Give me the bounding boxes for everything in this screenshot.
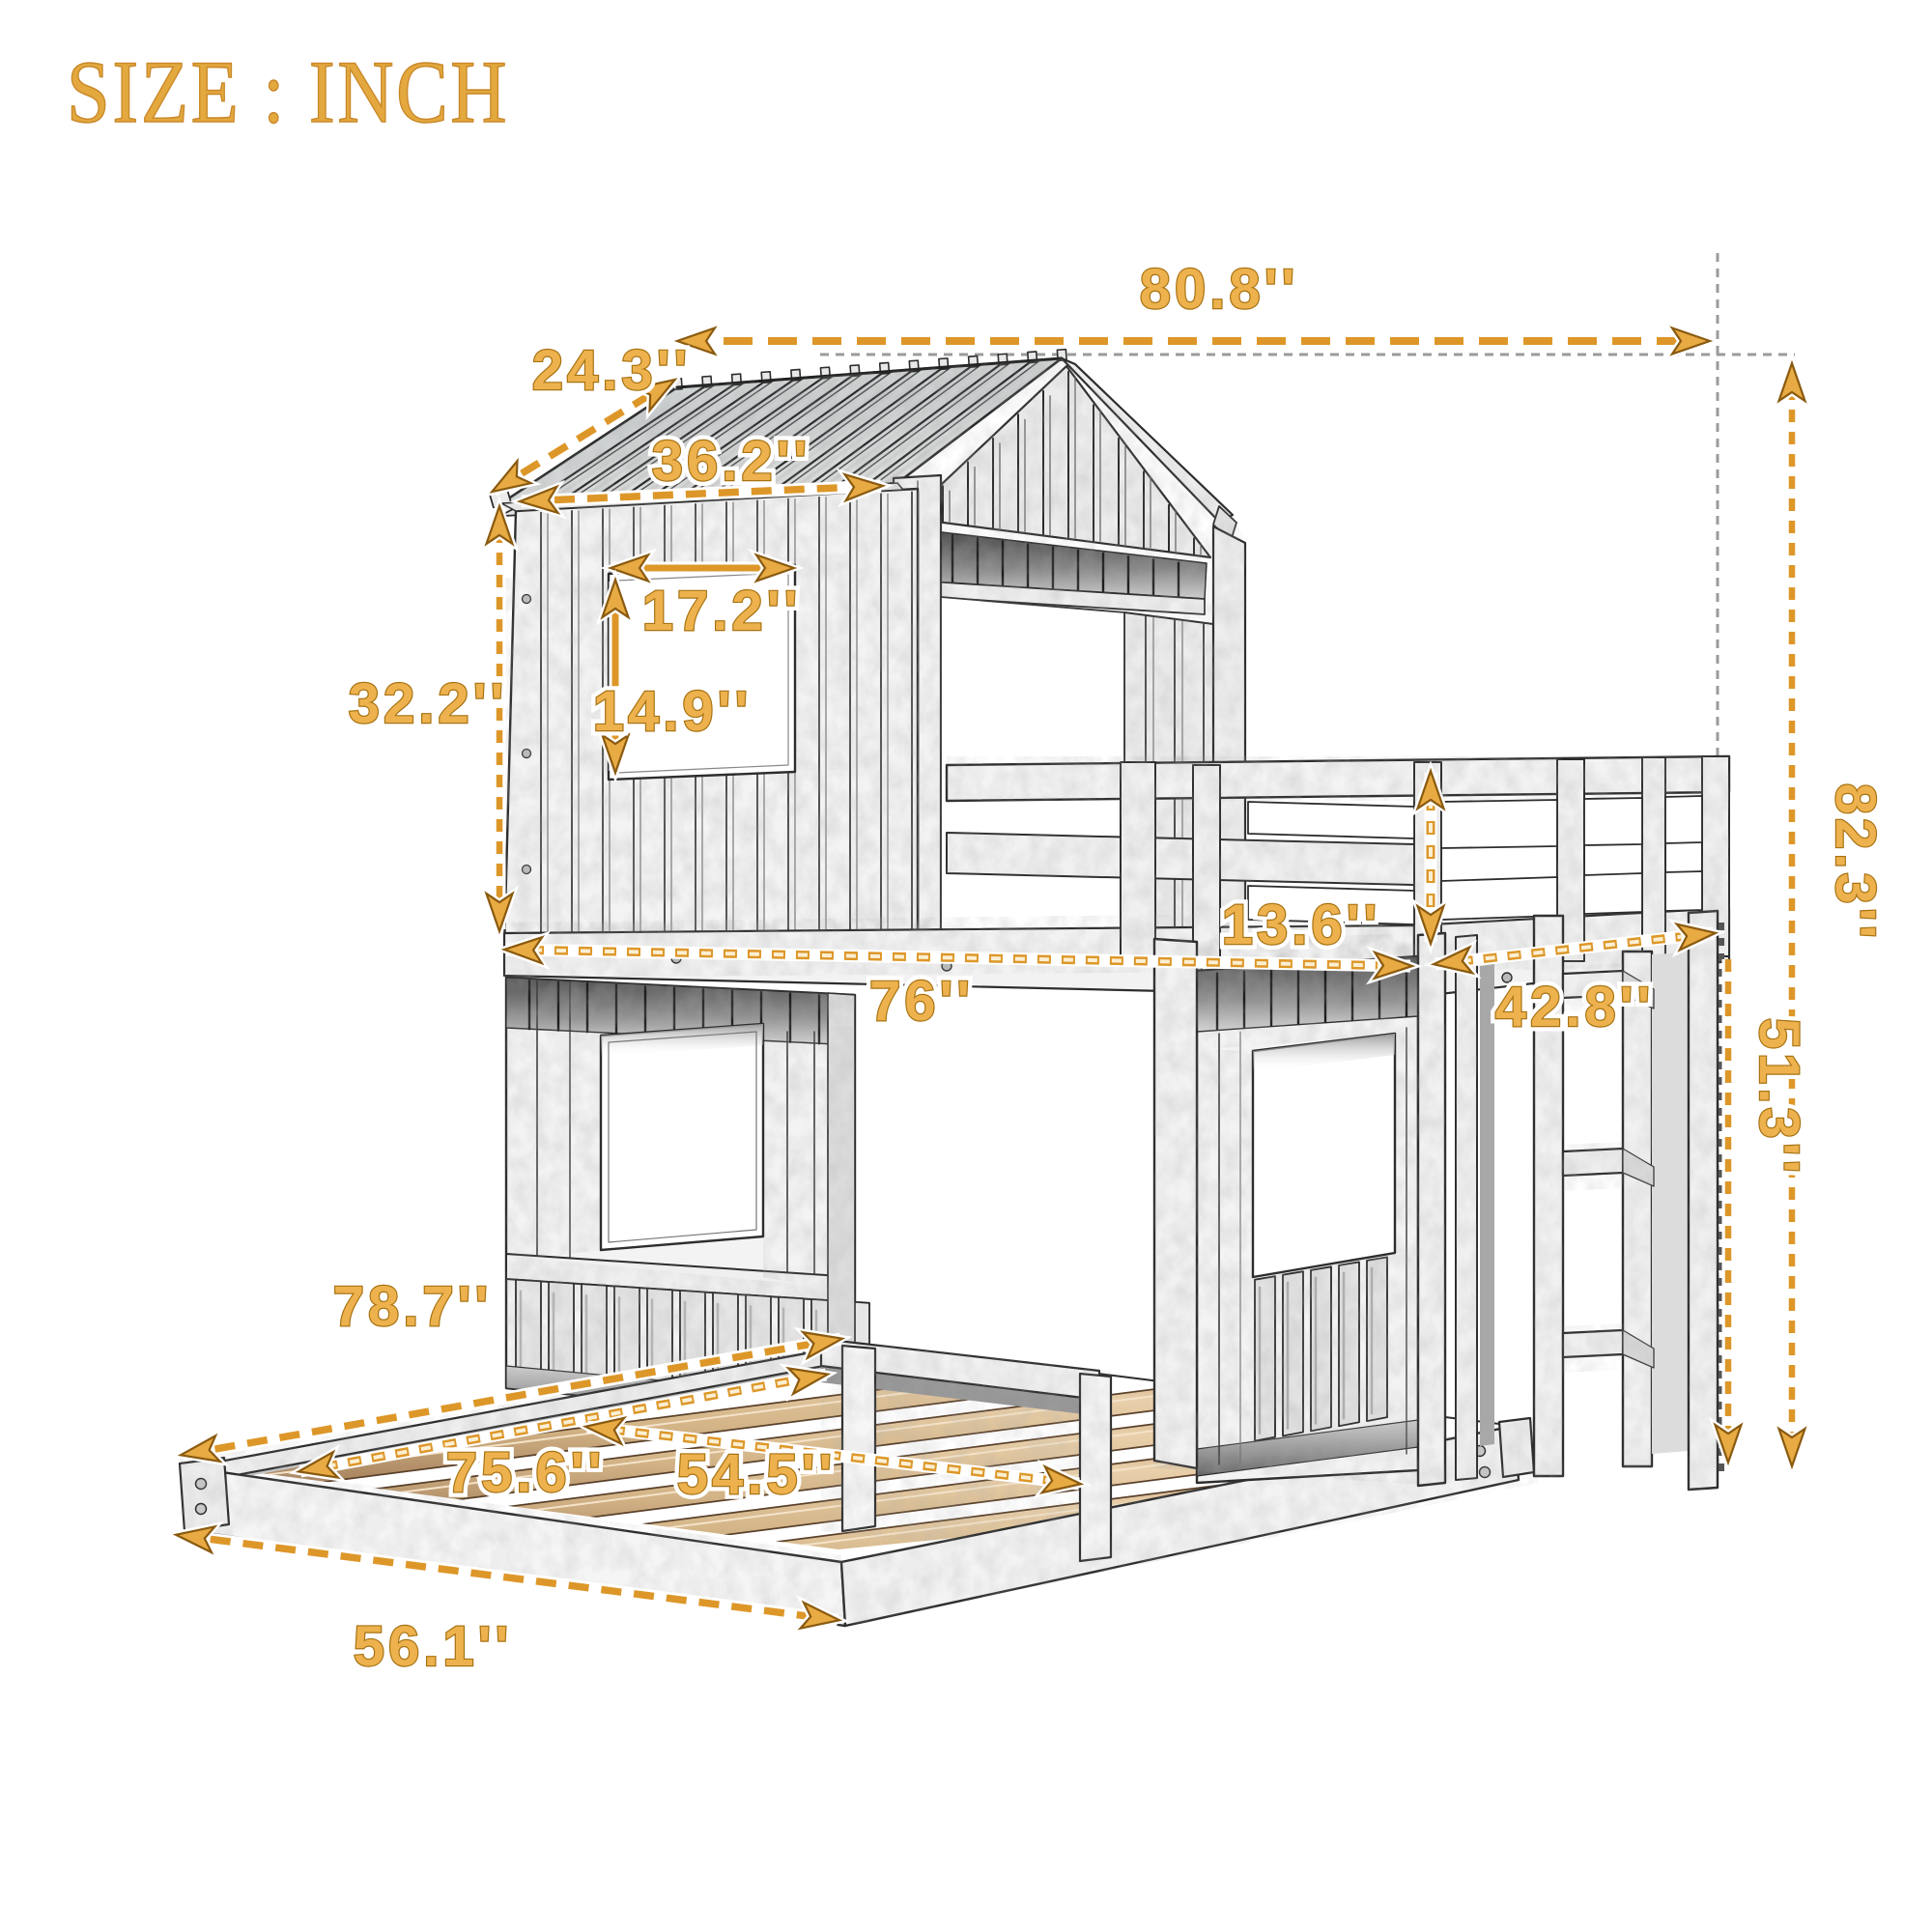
svg-text:80.8'': 80.8'' — [1140, 258, 1298, 321]
svg-text:51.3'': 51.3'' — [1747, 1018, 1810, 1177]
svg-text:75.6'': 75.6'' — [446, 1441, 605, 1504]
svg-text:17.2'': 17.2'' — [642, 580, 801, 642]
svg-text:24.3'': 24.3'' — [532, 339, 691, 402]
svg-text:14.9'': 14.9'' — [593, 680, 752, 743]
svg-text:42.8'': 42.8'' — [1495, 976, 1654, 1038]
svg-text:32.2'': 32.2'' — [349, 672, 507, 735]
svg-text:76'': 76'' — [869, 970, 974, 1033]
svg-text:SIZE : INCH: SIZE : INCH — [67, 43, 509, 141]
svg-text:13.6'': 13.6'' — [1222, 894, 1380, 956]
svg-text:54.5'': 54.5'' — [677, 1443, 836, 1506]
svg-text:82.3'': 82.3'' — [1824, 783, 1887, 942]
svg-text:78.7'': 78.7'' — [333, 1275, 492, 1338]
svg-text:56.1'': 56.1'' — [354, 1615, 512, 1678]
svg-text:36.2'': 36.2'' — [652, 430, 810, 493]
